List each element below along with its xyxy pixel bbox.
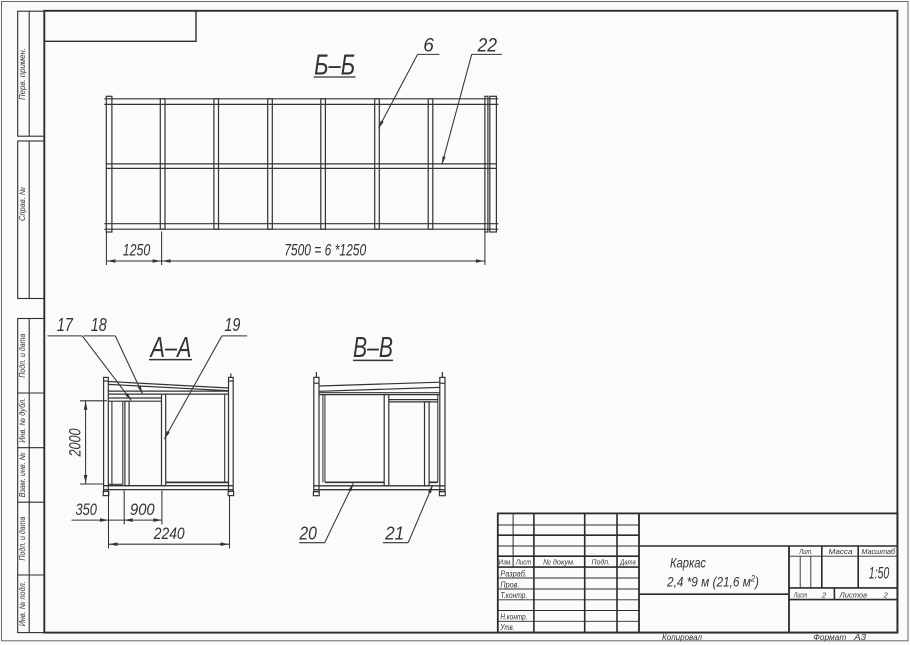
svg-text:Каркас: Каркас [670, 554, 706, 570]
svg-text:Лит.: Лит. [798, 547, 812, 556]
svg-text:Масштаб: Масштаб [862, 547, 896, 556]
svg-text:21: 21 [384, 523, 404, 544]
svg-text:Инв. № подл.: Инв. № подл. [18, 581, 27, 626]
svg-text:Разраб.: Разраб. [500, 569, 527, 578]
svg-text:20: 20 [298, 523, 317, 544]
svg-text:2,4 *9 м (21,6 м2): 2,4 *9 м (21,6 м2) [666, 573, 759, 589]
svg-text:Подп. и дата: Подп. и дата [18, 333, 27, 378]
svg-text:Н.контр.: Н.контр. [500, 613, 527, 622]
svg-text:Т.контр.: Т.контр. [500, 591, 527, 600]
svg-text:Формат: Формат [813, 632, 846, 642]
svg-text:2240: 2240 [153, 524, 185, 543]
svg-text:Изм.: Изм. [499, 558, 513, 567]
svg-text:Копировал: Копировал [662, 632, 702, 642]
svg-text:Взам. инв. №: Взам. инв. № [18, 452, 27, 497]
svg-text:900: 900 [130, 500, 155, 519]
svg-text:Подп.: Подп. [592, 558, 611, 567]
svg-text:Лист: Лист [515, 558, 531, 567]
svg-text:Пров.: Пров. [500, 580, 519, 589]
svg-text:17: 17 [57, 314, 74, 335]
svg-text:Масса: Масса [829, 547, 853, 556]
svg-text:2: 2 [821, 590, 827, 599]
svg-text:А3: А3 [853, 632, 866, 642]
svg-text:2000: 2000 [65, 428, 84, 457]
svg-text:Справ. №: Справ. № [18, 187, 27, 221]
svg-text:Дата: Дата [619, 558, 635, 567]
svg-text:Лист: Лист [793, 590, 807, 599]
svg-text:350: 350 [75, 500, 97, 519]
svg-text:22: 22 [477, 36, 498, 57]
svg-text:В–В: В–В [353, 332, 393, 364]
svg-text:1:50: 1:50 [869, 563, 890, 582]
svg-text:7500 = 6 *1250: 7500 = 6 *1250 [284, 240, 366, 259]
svg-text:1250: 1250 [123, 240, 151, 259]
svg-text:Листов: Листов [839, 590, 868, 599]
svg-text:№ докум.: № докум. [543, 558, 575, 567]
svg-text:Подп. и дата: Подп. и дата [18, 516, 27, 561]
svg-text:Инв. № дубл.: Инв. № дубл. [18, 398, 27, 443]
svg-text:19: 19 [224, 314, 240, 335]
svg-text:2: 2 [883, 590, 889, 599]
svg-text:6: 6 [423, 36, 434, 57]
svg-text:Утв.: Утв. [500, 623, 515, 632]
svg-text:Перв. примен.: Перв. примен. [18, 48, 27, 100]
svg-text:18: 18 [91, 314, 108, 335]
